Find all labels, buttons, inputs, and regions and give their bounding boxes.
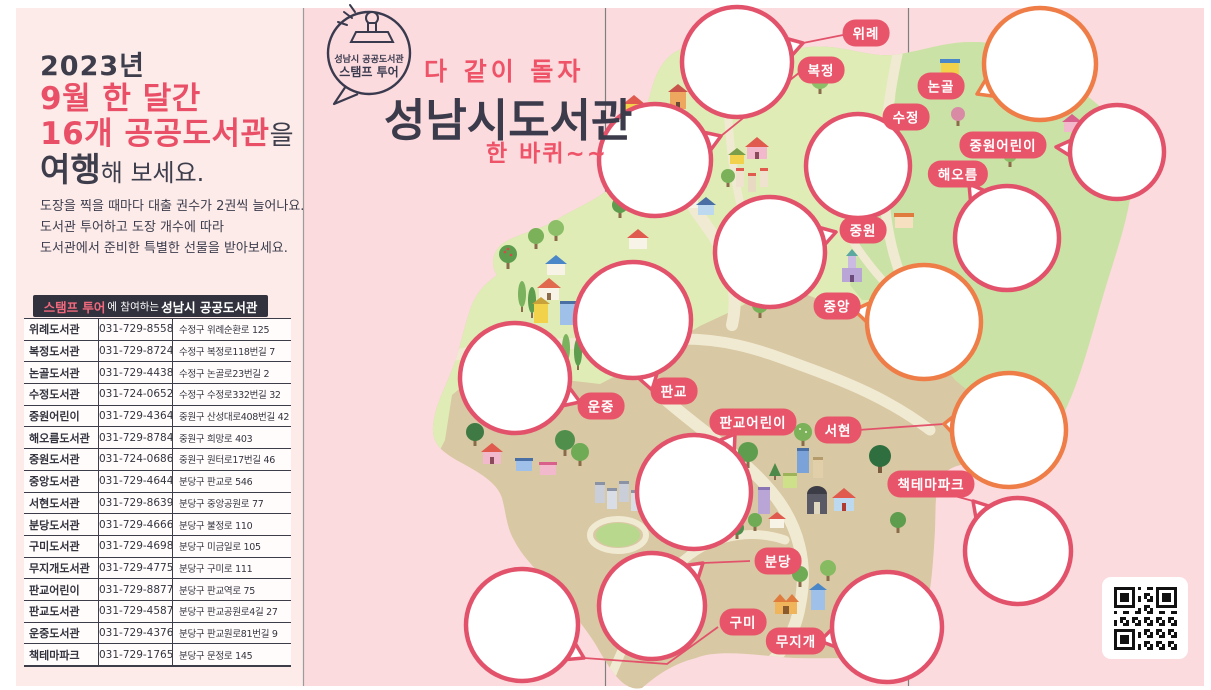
map-label-gumi: 구미 [720, 609, 767, 636]
map-label-unjung: 운중 [578, 393, 625, 420]
label-connector [803, 35, 843, 43]
building-icon [758, 487, 770, 514]
map-label-wirye: 위례 [843, 20, 890, 47]
qr-code-image [1114, 587, 1177, 650]
apartment-icon [813, 457, 823, 478]
stamp-circle-pangyo-child [637, 434, 751, 549]
badge-tour-label: 스탬프 투어 [339, 64, 398, 79]
shop-icon [539, 462, 557, 475]
qr-code [1102, 577, 1188, 659]
apartment-icon [760, 168, 768, 187]
shop-icon [807, 486, 827, 514]
apartment-icon [748, 173, 756, 192]
apartment-icon [595, 482, 605, 503]
map-label-nongol: 논골 [918, 73, 965, 100]
map-label-jungwon-child: 중원어린이 [959, 132, 1046, 159]
brochure-page: 성남시 공공도서관 스탬프 투어 2023년 9월 한 달간 16개 공공도서관… [0, 0, 1211, 690]
map-label-pangyo: 판교 [651, 378, 698, 405]
map-subtitle: 한 바퀴~~ [486, 134, 608, 168]
map-label-seohyeon: 서현 [815, 417, 862, 444]
map-label-jungwon: 중원 [840, 217, 887, 244]
shop-icon [894, 213, 914, 228]
map-tagline: 다 같이 돌자 [424, 52, 584, 88]
map-label-book-theme-park: 책테마파크 [887, 471, 974, 498]
shop-icon [515, 458, 533, 471]
map-label-bokjeong: 복정 [798, 57, 845, 84]
building-icon [783, 473, 797, 488]
apartment-icon [607, 488, 617, 509]
apartment-icon [736, 168, 744, 187]
apartment-icon [619, 481, 629, 502]
stamp-circle-book-theme-park [965, 498, 1071, 604]
apartment-icon [797, 448, 809, 473]
map-label-mujigae: 무지개 [766, 628, 826, 655]
map-label-haeoreum: 해오름 [928, 161, 988, 188]
park-icon [596, 523, 640, 547]
map-label-pangyo-child: 판교어린이 [709, 409, 796, 436]
map-label-sujeong: 수정 [883, 104, 930, 131]
map-label-bundang: 분당 [755, 548, 802, 575]
badge-org-label: 성남시 공공도서관 [334, 53, 404, 65]
map-label-jungang: 중앙 [814, 293, 861, 320]
stamp-circle-bundang [599, 553, 705, 659]
stamp-circle-haeoreum [955, 184, 1059, 290]
